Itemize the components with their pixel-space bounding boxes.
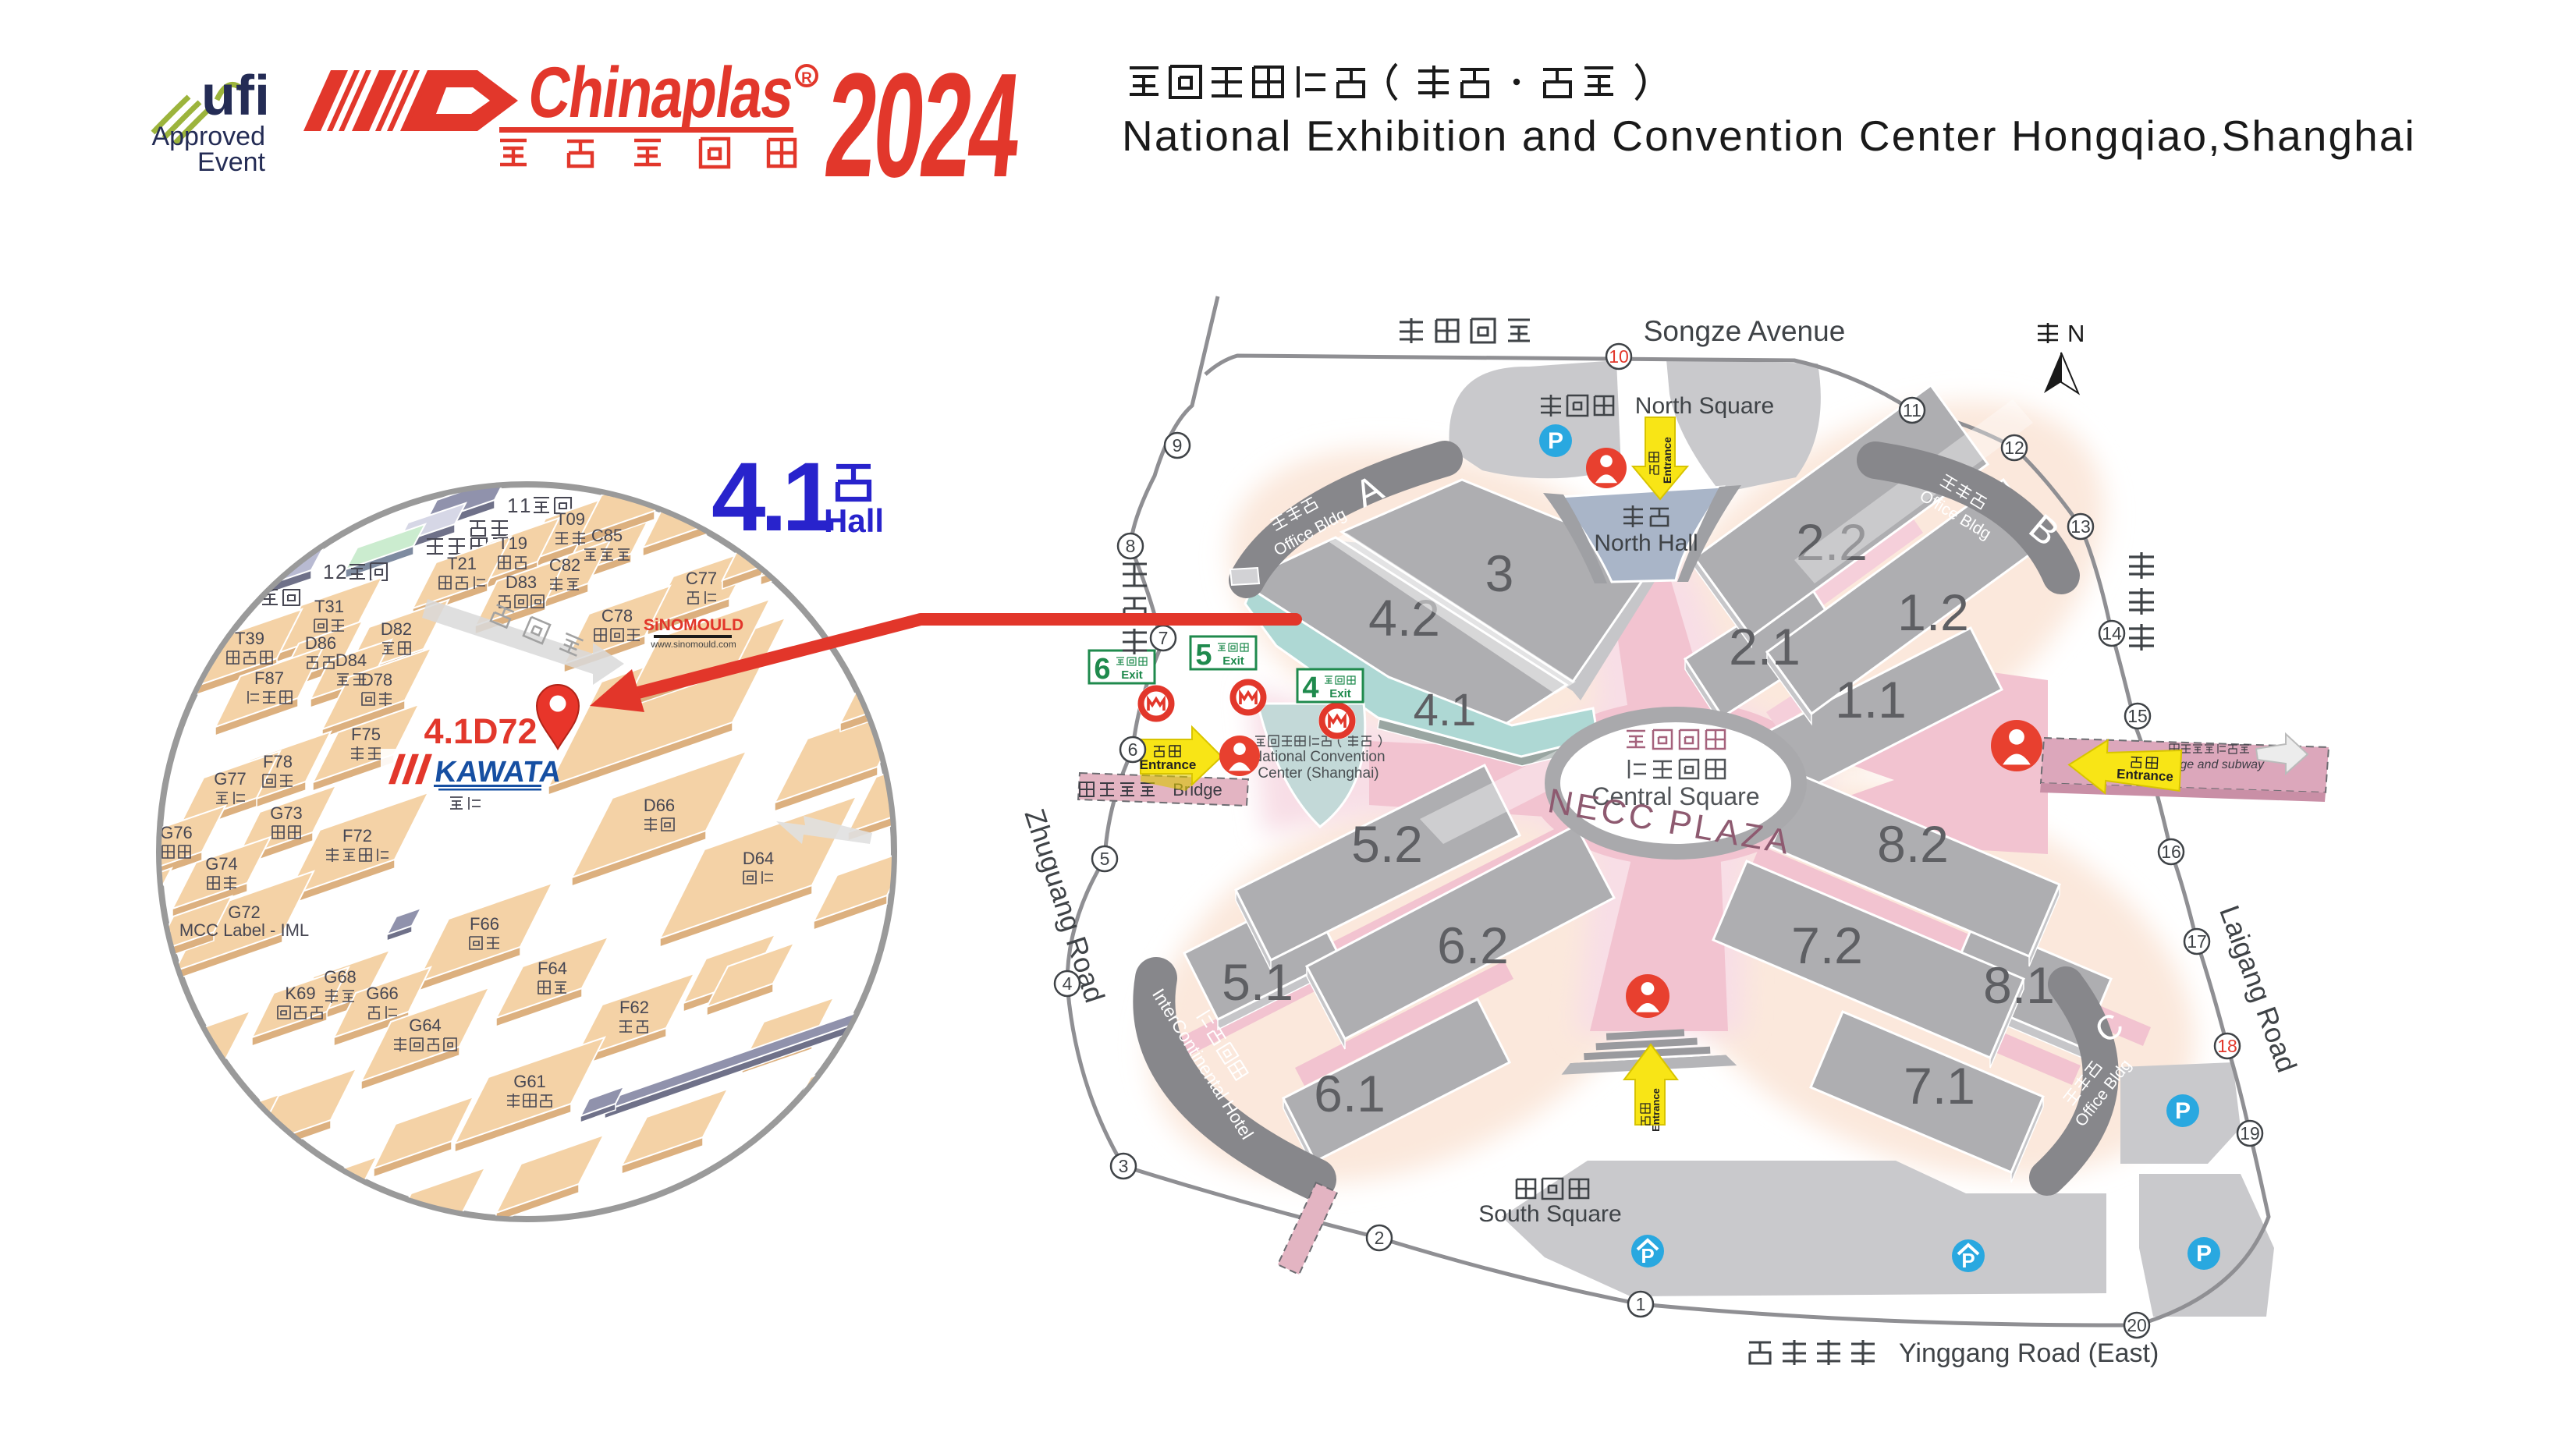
svg-text:6.2: 6.2 — [1437, 916, 1509, 974]
svg-text:Yinggang Road (East): Yinggang Road (East) — [1899, 1338, 2159, 1368]
svg-text:T39: T39 — [235, 629, 264, 648]
svg-text:Entrance: Entrance — [1650, 1088, 1662, 1132]
svg-text:R: R — [801, 70, 812, 87]
svg-text:G72: G72 — [228, 902, 261, 922]
svg-text:www.sinomould.com: www.sinomould.com — [650, 639, 736, 650]
svg-text:P: P — [2175, 1098, 2191, 1124]
svg-text:2: 2 — [335, 560, 346, 583]
svg-text:15: 15 — [2127, 706, 2148, 726]
svg-text:Center (Shanghai): Center (Shanghai) — [1258, 765, 1378, 782]
svg-text:SiNOMOULD: SiNOMOULD — [644, 616, 743, 634]
svg-text:7.1: 7.1 — [1904, 1057, 1975, 1115]
svg-text:F72: F72 — [342, 826, 372, 846]
svg-text:Exit: Exit — [1329, 687, 1351, 700]
svg-text:G74: G74 — [205, 854, 238, 874]
svg-text:6: 6 — [1128, 739, 1138, 760]
svg-text:D66: D66 — [644, 796, 675, 815]
svg-text:D86: D86 — [305, 633, 336, 653]
svg-text:9: 9 — [1173, 435, 1183, 456]
svg-text:5: 5 — [1195, 639, 1212, 672]
svg-text:F66: F66 — [470, 914, 499, 934]
svg-text:5.2: 5.2 — [1351, 815, 1423, 873]
svg-text:P: P — [1961, 1249, 1975, 1272]
svg-text:C85: C85 — [591, 526, 623, 545]
svg-text:1: 1 — [323, 560, 334, 583]
svg-text:Entrance: Entrance — [1661, 437, 1673, 484]
svg-text:1: 1 — [1636, 1294, 1646, 1314]
svg-text:T19: T19 — [498, 534, 527, 553]
svg-text:T09: T09 — [555, 509, 585, 529]
svg-text:G61: G61 — [513, 1072, 546, 1091]
svg-text:T31: T31 — [314, 597, 344, 616]
svg-text:1: 1 — [520, 494, 530, 517]
svg-text:Event: Event — [197, 147, 265, 177]
svg-text:ufi: ufi — [201, 65, 270, 127]
svg-text:6: 6 — [1094, 653, 1110, 686]
svg-text:C82: C82 — [549, 555, 580, 575]
svg-text:National Exhibition and Conven: National Exhibition and Convention Cente… — [1122, 112, 2416, 160]
svg-text:8.1: 8.1 — [1983, 956, 2055, 1014]
svg-text:North Hall: North Hall — [1594, 530, 1698, 556]
svg-text:3: 3 — [1119, 1156, 1129, 1176]
svg-text:T21: T21 — [447, 554, 477, 573]
svg-text:2024: 2024 — [819, 43, 1027, 208]
svg-text:1.1: 1.1 — [1835, 671, 1907, 729]
svg-text:11: 11 — [1903, 400, 1921, 420]
svg-text:12: 12 — [2004, 438, 2024, 458]
svg-text:G64: G64 — [409, 1016, 442, 1035]
svg-text:Chinaplas: Chinaplas — [523, 52, 798, 133]
svg-text:D83: D83 — [506, 573, 537, 592]
svg-text:20: 20 — [2127, 1315, 2147, 1335]
svg-text:D84: D84 — [335, 651, 367, 670]
svg-text:Exit: Exit — [1121, 668, 1143, 682]
svg-text:F64: F64 — [538, 959, 567, 978]
svg-text:1: 1 — [236, 586, 247, 609]
svg-text:13: 13 — [2070, 516, 2091, 537]
svg-text:4.1: 4.1 — [1414, 685, 1477, 736]
svg-text:6.1: 6.1 — [1314, 1065, 1386, 1122]
svg-text:F62: F62 — [619, 998, 649, 1017]
svg-text:G66: G66 — [366, 984, 399, 1003]
svg-text:Entrance: Entrance — [1140, 757, 1197, 772]
svg-text:2: 2 — [1375, 1228, 1385, 1248]
svg-text:G77: G77 — [214, 769, 247, 789]
svg-text:G73: G73 — [270, 803, 303, 823]
svg-text:2.1: 2.1 — [1729, 618, 1801, 675]
svg-text:8.2: 8.2 — [1877, 815, 1949, 873]
svg-text:C77: C77 — [686, 569, 717, 588]
svg-text:4: 4 — [1063, 973, 1073, 994]
svg-text:National Convention: National Convention — [1251, 749, 1385, 765]
svg-text:19: 19 — [2240, 1123, 2260, 1143]
svg-text:C78: C78 — [601, 606, 633, 626]
svg-text:South Square: South Square — [1478, 1201, 1621, 1227]
svg-text:Songze Avenue: Songze Avenue — [1644, 315, 1846, 347]
svg-text:G76: G76 — [160, 823, 193, 842]
svg-text:16: 16 — [2161, 842, 2181, 862]
svg-text:5.1: 5.1 — [1222, 953, 1293, 1011]
svg-text:4.1: 4.1 — [711, 443, 834, 551]
svg-text:D64: D64 — [743, 849, 774, 868]
svg-text:1: 1 — [507, 494, 518, 517]
svg-text:14: 14 — [2102, 623, 2122, 643]
svg-text:F87: F87 — [254, 668, 284, 688]
svg-text:10: 10 — [1609, 346, 1629, 367]
svg-text:4: 4 — [1302, 672, 1318, 704]
svg-text:7.2: 7.2 — [1791, 916, 1863, 974]
svg-text:G68: G68 — [324, 967, 357, 987]
svg-text:3: 3 — [1485, 544, 1514, 602]
svg-text:F78: F78 — [263, 752, 293, 771]
svg-text:D82: D82 — [381, 619, 412, 639]
svg-text:MCC Label - IML: MCC Label - IML — [179, 920, 309, 940]
svg-text:Exit: Exit — [1222, 654, 1244, 668]
svg-text:1.2: 1.2 — [1897, 583, 1969, 641]
svg-text:18: 18 — [2217, 1036, 2237, 1056]
svg-text:North Square: North Square — [1635, 393, 1774, 419]
svg-text:Hall: Hall — [824, 502, 884, 539]
svg-text:7: 7 — [1158, 628, 1169, 648]
svg-text:4.1D72: 4.1D72 — [424, 711, 537, 751]
svg-text:5: 5 — [1100, 849, 1110, 869]
svg-text:KAWATA: KAWATA — [433, 755, 564, 789]
svg-text:Entrance: Entrance — [2117, 767, 2174, 785]
svg-text:D78: D78 — [361, 670, 392, 690]
svg-text:P: P — [2196, 1241, 2212, 1267]
svg-text:17: 17 — [2187, 931, 2207, 952]
svg-text:P: P — [1641, 1244, 1654, 1267]
svg-text:F75: F75 — [351, 725, 381, 744]
svg-text:N: N — [2067, 320, 2085, 347]
svg-text:8: 8 — [1126, 536, 1136, 556]
svg-text:K69: K69 — [285, 984, 315, 1003]
svg-text:P: P — [1548, 428, 1563, 454]
